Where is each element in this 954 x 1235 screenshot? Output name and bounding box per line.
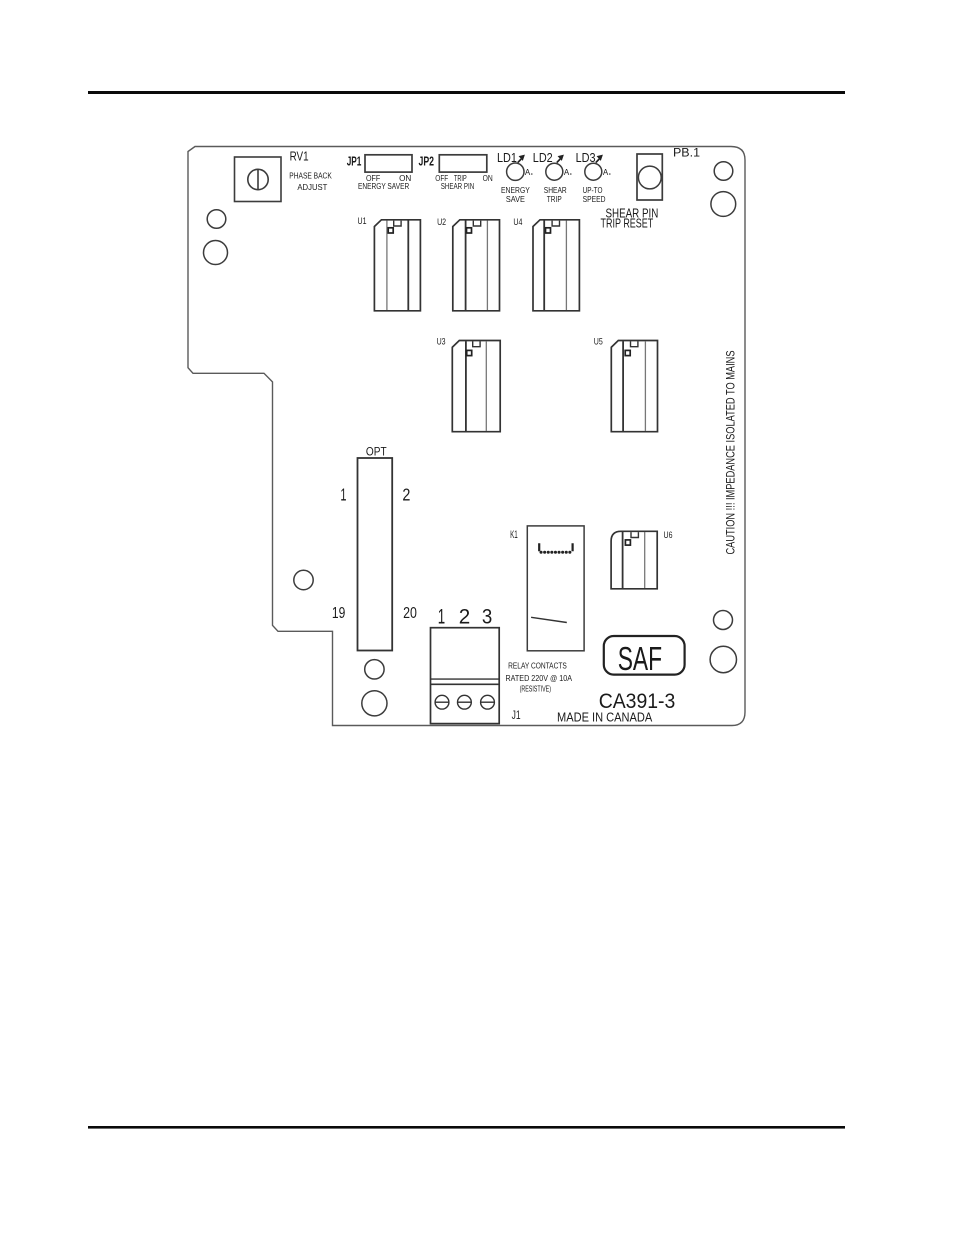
- svg-text:U4: U4: [513, 217, 522, 228]
- svg-text:U5: U5: [594, 336, 603, 347]
- svg-text:RV1: RV1: [290, 150, 309, 164]
- svg-text:SAVE: SAVE: [506, 195, 525, 204]
- svg-text:K1: K1: [510, 529, 518, 541]
- svg-text:U1: U1: [358, 216, 367, 227]
- svg-text:U6: U6: [664, 530, 673, 541]
- svg-text:SHEAR: SHEAR: [544, 186, 567, 195]
- svg-text:ENERGY SAVER: ENERGY SAVER: [358, 182, 409, 191]
- svg-text:SPEED: SPEED: [583, 195, 606, 204]
- svg-text:2: 2: [459, 605, 471, 629]
- svg-text:3: 3: [482, 605, 492, 629]
- svg-text:RELAY CONTACTS: RELAY CONTACTS: [508, 662, 567, 671]
- svg-text:A: A: [603, 168, 609, 177]
- svg-text:ENERGY: ENERGY: [501, 186, 530, 195]
- svg-text:ON: ON: [483, 174, 493, 183]
- svg-text:PB.1: PB.1: [673, 146, 700, 160]
- svg-text:MADE IN CANADA: MADE IN CANADA: [557, 710, 653, 725]
- svg-text:TRIP RESET: TRIP RESET: [601, 216, 654, 231]
- svg-text:JP2: JP2: [419, 154, 435, 168]
- svg-text:TRIP: TRIP: [547, 195, 562, 204]
- svg-text:2: 2: [402, 484, 410, 504]
- svg-text:J1: J1: [512, 710, 521, 722]
- svg-text:PHASE BACK: PHASE BACK: [289, 171, 332, 180]
- svg-text:UP-TO: UP-TO: [583, 186, 603, 195]
- svg-text:CAUTION !!! IMPEDANCE ISOLATED: CAUTION !!! IMPEDANCE ISOLATED TO MAINS: [724, 351, 738, 555]
- svg-text:U3: U3: [437, 336, 446, 347]
- svg-text:RATED 220V @ 10A: RATED 220V @ 10A: [506, 674, 573, 683]
- svg-text:20: 20: [403, 605, 417, 622]
- svg-text:19: 19: [332, 605, 345, 622]
- svg-text:(RESISTIVE): (RESISTIVE): [520, 685, 552, 694]
- svg-text:ADJUST: ADJUST: [297, 183, 327, 192]
- svg-text:A: A: [525, 168, 531, 177]
- svg-text:A: A: [564, 168, 570, 177]
- svg-text:SHEAR PIN: SHEAR PIN: [441, 182, 475, 191]
- svg-text:JP1: JP1: [347, 154, 362, 168]
- svg-text:U2: U2: [437, 217, 446, 228]
- svg-text:1: 1: [340, 484, 346, 504]
- svg-text:1: 1: [438, 605, 445, 629]
- svg-text:SAF: SAF: [618, 640, 662, 677]
- svg-text:OPT: OPT: [366, 447, 387, 459]
- svg-text:LD2: LD2: [533, 151, 553, 165]
